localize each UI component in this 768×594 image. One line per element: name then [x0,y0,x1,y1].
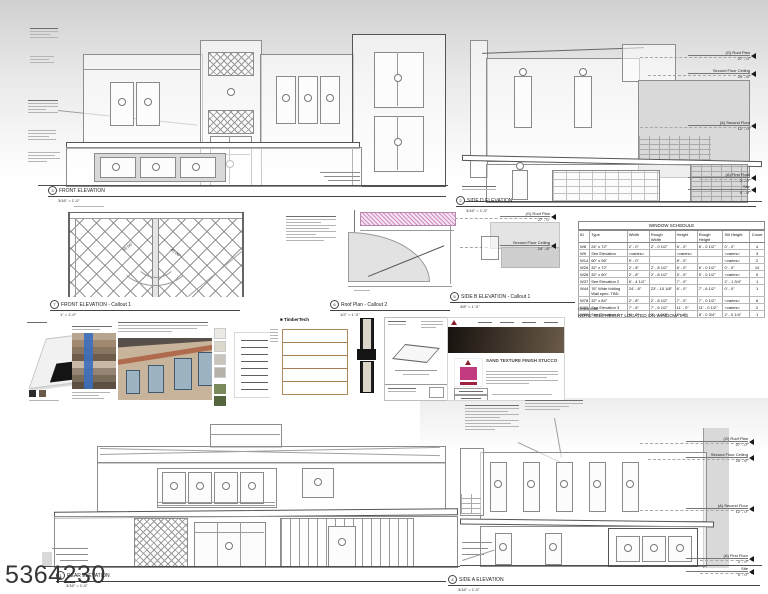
spec-caption [403,374,429,377]
spec-drawing [392,344,440,363]
chevron-siding-panel [134,518,188,568]
front-elevation-notes-3 [28,100,58,115]
window-schedule-header: ID Type Width Rough Width Height Rough H… [578,230,765,243]
view-title: FRONT ELEVATION [59,188,105,194]
fixture-brand [27,322,47,325]
level-flag-icon [751,175,756,181]
window-tag [593,480,601,488]
window-tag [152,163,160,171]
level-marker-roof-plan-a: (G) Roof Plan27' - 0" [686,436,754,447]
window-tag [626,480,634,488]
side-a-notes-1 [465,405,519,432]
window-tag [560,480,568,488]
level-flag-icon [749,506,754,512]
window-tag [676,544,684,552]
masonry-coursing [461,494,481,514]
level-flag-icon [751,71,756,77]
sconce-bracket [357,349,376,360]
titleblock-page-box [429,387,444,398]
level-marker-second-floor-a: (A) Second Floor12' - 0" [686,503,754,514]
side-b-callout-label: 5 SIDE B ELEVATION - Callout 1 3/8" = 1'… [450,292,575,310]
side-a-elevation-view [460,400,762,575]
window-tag [314,478,322,486]
dim-text [354,290,444,293]
schedule-row: W80 See Elevation 3 7' - 6" 7' - 6 1/2" … [578,304,765,311]
schedule-row: W44 76" Wide folding Wall spec. TBD 24' … [578,285,765,297]
color-chart-title [72,326,112,332]
steps [462,542,492,543]
window [574,76,592,128]
chevron-panel-lower [208,110,254,134]
window-schedule-title: WINDOW SCHEDULE [578,221,765,230]
level-marker-second-floor: (A) Second Floor12' - 0" [688,120,756,131]
window-tag [624,544,632,552]
clerestory [210,424,282,448]
product-card [454,358,483,387]
view-number: 5 [450,292,459,301]
dim-line [450,226,451,284]
rear-elevation-label: 1 REAR ELEVATION 3/16" = 1'-0" [56,571,446,589]
side-a-elevation-label: 4 SIDE A ELEVATION 3/16" = 1'-0" [448,575,760,593]
level-flag-icon [749,439,754,445]
front-elevation-label: 3 FRONT ELEVATION 3/16" = 1'-0" [48,186,446,204]
masonry-coursing [639,136,711,160]
steps [56,554,88,555]
window-schedule-table: WINDOW SCHEDULE ID Type Width Rough Widt… [578,221,765,318]
steps [320,172,360,173]
stucco-heading: SAND TEXTURE FINISH STUCCO [486,358,560,364]
window-tag [394,74,402,82]
view-scale: 3/16" = 1'-0" [58,198,446,204]
level-flag-icon [749,455,754,461]
window-tag [527,480,535,488]
schedule-row: W78 32" x 84" 2' - 8" 2' - 8 1/2" 7' - 0… [578,297,765,304]
zoom-dot-icon [340,333,344,337]
head-trim-line [68,212,244,213]
schedule-row: W9 See Elevation <varies> <varies> <vari… [578,250,765,257]
window-tag [549,543,557,551]
window-tag [499,543,507,551]
schedule-grand-total: Grand total [578,306,598,311]
level-flag-icon [749,556,754,562]
photo-window [148,365,164,393]
window-tag [579,68,587,76]
schedule-row: W28 32" x 60" 2' - 8" 2' - 8 1/2" 5' - 0… [578,271,765,278]
wall-line [360,230,454,231]
facade-photo [118,338,212,400]
level-flag-icon [551,214,556,220]
schedule-row: W14 60" x 96" 5' - 0" 8' - 0" <varies> 2 [578,257,765,264]
door-tag [225,542,233,550]
level-flag-icon [751,187,756,193]
front-callout-view: 45.00° 45.00° [38,206,248,300]
schedule-row: W37 See Elevation 2 6' - 4 1/2" 7' - 0" … [578,278,765,285]
window-tag [394,138,402,146]
window-tag [118,98,126,106]
detail-box [481,236,499,260]
window-tag [326,94,334,102]
timbertech-logo: ■ TimberTech [280,317,309,322]
window-tag [192,163,200,171]
planting [462,186,496,192]
balcony-rail [157,502,275,503]
request-datasheet-button[interactable] [454,388,488,395]
spec-dim-line [395,370,437,371]
chevron-panel-upper [208,52,254,76]
titleblock-line [385,384,447,385]
window-tag [282,94,290,102]
balcony-rail [157,505,275,506]
swatch [214,328,226,339]
view-scale: 3/16" = 1'-0" [458,587,760,593]
photo-window [198,352,212,386]
wall-sconce [355,318,379,394]
breadcrumb-line [492,394,552,397]
roof-callout-label: 6 Roof Plan - Callout 2 1/2" = 1'-0" [330,300,450,318]
facade-reference [118,322,212,400]
level-marker-site: Site0' - 0" [688,184,756,195]
window-tag [650,544,658,552]
dim-line [348,286,452,287]
level-marker-first-floor-a: (A) First Floor2' - 0" [686,553,754,564]
hero-image [448,327,564,353]
spec-logo [388,321,406,327]
window-tag [227,88,235,96]
level-marker-roof-plan: (G) Roof Plan27' - 0" [688,50,756,61]
view-scale: 1/2" = 1'-0" [340,312,450,318]
callout-dimensions [74,206,224,209]
window-schedule-rows: W8 24" x 72" 2' - 0" 2' - 0 1/2" 6' - 0"… [578,243,765,318]
window-tag [112,163,120,171]
roof-callout-view [284,206,456,300]
steps [328,180,360,181]
wood-panel-sample [282,329,348,395]
schedule-row: W26 32" x 72" 2' - 8" 2' - 8 1/2" 6' - 0… [578,264,765,271]
spec-header-text [421,321,443,330]
stucco-description [486,371,558,386]
timbertech-card: ■ TimberTech [270,315,348,398]
thumbnail-icon [39,390,46,397]
view-title: SIDE D ELEVATION [467,198,512,204]
jamb [68,212,70,297]
view-title: SIDE A ELEVATION [459,577,504,583]
view-title: Roof Plan - Callout 2 [341,302,387,308]
window-tag [338,538,346,546]
view-title: SIDE B ELEVATION - Callout 1 [461,294,530,300]
mullion [217,522,218,566]
steps [324,176,360,177]
angle-arc [134,236,178,278]
level-flag-icon [749,569,754,575]
color-chart-caption [72,392,110,401]
front-elevation-notes-1 [30,28,58,40]
front-elevation-notes-2 [30,56,54,65]
thumbnail-icon [29,390,36,397]
view-scale: 3/8" = 1'-0" [460,304,575,310]
window-tag [170,482,178,490]
facade-reference-text [118,322,208,334]
roof-edge [482,47,644,54]
rear-elevation-view [42,410,460,570]
steps [52,548,88,549]
watermark-id: 5364230 [5,561,106,590]
sconce-upper [360,318,374,350]
roof-callout-notes [286,216,336,243]
level-flag-icon [751,123,756,129]
titleblock-text [388,388,416,394]
view-number: 7 [50,300,59,309]
parapet-box [622,44,676,82]
side-a-notes-2 [525,400,583,412]
view-scale: 1" = 1'-0" [60,312,240,318]
swatch [214,341,226,352]
jamb [75,219,76,297]
view-number: 6 [330,300,339,309]
schedule-note: NOTE: SILL HEIGHT LOCATED ON WINDOW TAG [578,314,688,319]
view-title: FRONT ELEVATION - Callout 1 [61,302,131,308]
level-marker-ceiling-callout: Second Floor Ceiling24' - 6" [500,240,556,251]
schedule-row: W8 24" x 72" 2' - 0" 2' - 0 1/2" 6' - 0"… [578,243,765,250]
swatch [214,354,226,365]
window-tag [519,68,527,76]
view-number: 4 [448,575,457,584]
nav-item [478,322,492,325]
transom-line [194,532,264,533]
side-d-elevation-view [462,18,764,196]
photo-thumb [214,396,226,406]
level-marker-second-floor-ceiling: Second Floor Ceiling24' - 6" [688,68,756,79]
window [514,76,532,128]
product-button [460,382,477,385]
view-scale: 3/16" = 1'-0" [466,208,756,214]
product-bag [460,367,477,380]
level-flag-icon [751,53,756,59]
product-logo-icon [465,360,471,365]
timbertech-sidebar [270,329,278,344]
window-tag [144,98,152,106]
window-tag [248,482,256,490]
wall-upper [486,58,640,162]
mullion [240,522,241,566]
window-tag [494,480,502,488]
jamb [242,212,244,297]
color-chart-grid [72,333,116,389]
sconce-lower [360,361,374,393]
front-elevation-view [38,14,448,186]
side-d-elevation-label: 2 SIDE D ELEVATION 3/16" = 1'-0" [456,196,756,214]
clerestory-line [210,434,280,435]
drawing-sheet: 3 FRONT ELEVATION 3/16" = 1'-0" (G) Roof… [0,0,768,594]
wall-line [83,69,201,70]
brand-triangle-icon [451,320,457,325]
fixture-caption [29,400,59,403]
front-elevation-notes-4 [28,130,56,142]
louver-slats [241,340,268,390]
photo-window [126,370,140,394]
level-marker-first-floor: (A) First Floor2' - 0" [688,172,756,183]
view-number: 2 [456,196,465,205]
color-chart [72,326,116,402]
photo-thumb [214,384,226,394]
photo-window [174,358,192,390]
view-number: 3 [48,186,57,195]
front-callout-label: 7 FRONT ELEVATION - Callout 1 1" = 1'-0" [50,300,240,318]
spec-sheet [384,317,448,401]
color-chart-selected-column [84,333,93,389]
level-flag-icon [551,243,556,249]
window-tag [222,482,230,490]
window-tag [516,162,524,170]
nav-item [500,322,514,325]
front-elevation-notes-5 [28,152,60,164]
roof-membrane-hatch [360,212,456,226]
window-tag [196,482,204,490]
screen-door [328,526,356,568]
swatch-column [214,328,226,406]
nav-item [544,322,558,325]
swatch [214,367,226,378]
level-marker-ceiling-a: Second Floor Ceiling24' - 6" [686,452,754,463]
steps [462,548,488,549]
nav-item [522,322,536,325]
window-tag [304,94,312,102]
view-scale: 3/16" = 1'-0" [66,583,446,589]
stucco-webpage: SAND TEXTURE FINISH STUCCO [447,317,565,401]
